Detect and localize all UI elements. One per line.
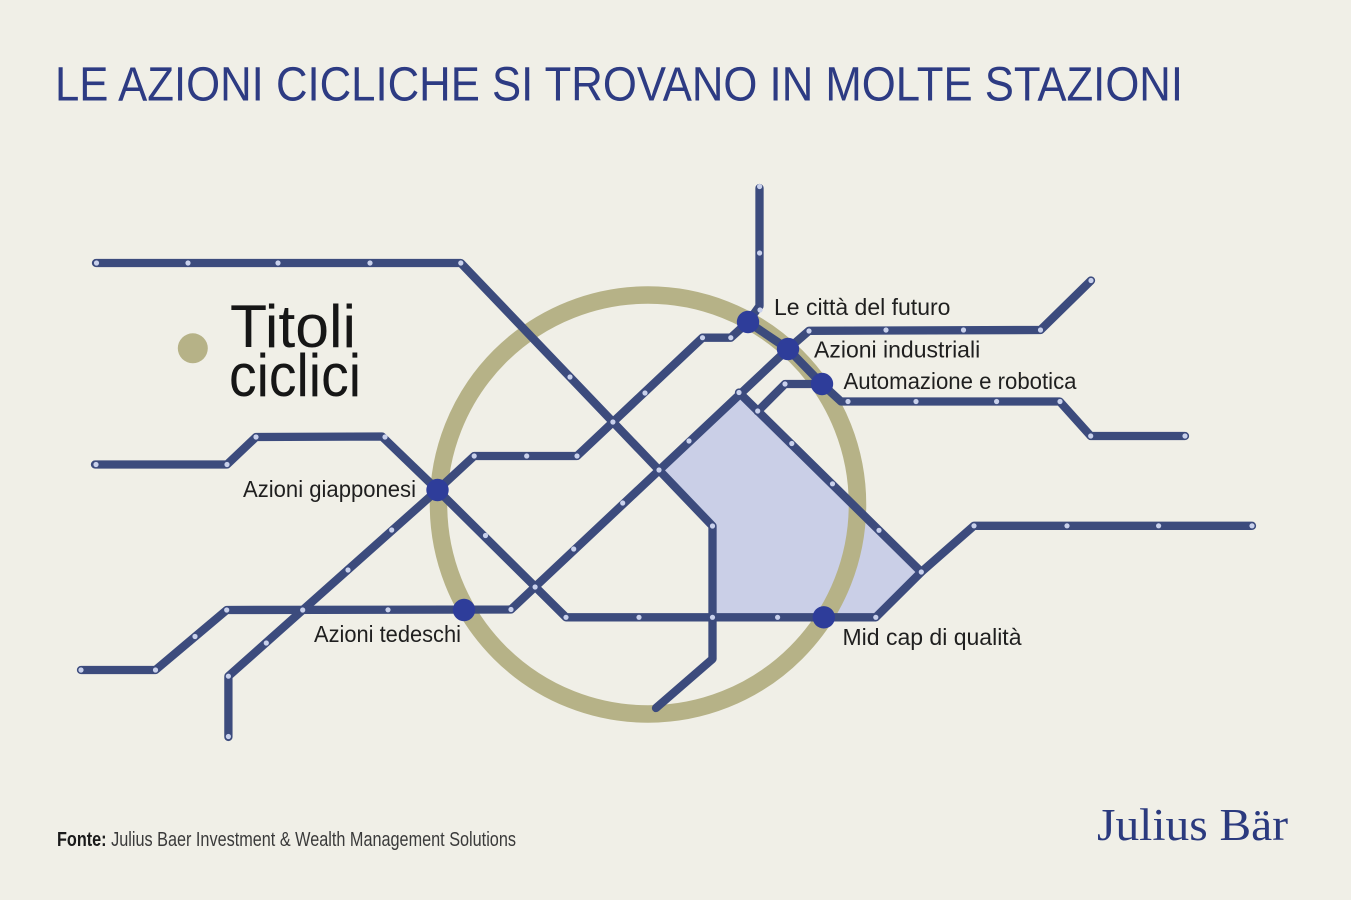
svg-text:Azioni industriali: Azioni industriali [814, 337, 980, 363]
svg-text:ciclici: ciclici [229, 342, 361, 409]
svg-text:Fonte: Julius Baer Investment: Fonte: Julius Baer Investment & Wealth M… [57, 829, 516, 851]
svg-text:Mid cap di qualità: Mid cap di qualità [843, 624, 1022, 650]
svg-text:Julius Bär: Julius Bär [1097, 800, 1288, 850]
svg-text:Automazione e robotica: Automazione e robotica [844, 368, 1077, 394]
svg-text:Azioni tedeschi: Azioni tedeschi [314, 621, 461, 647]
svg-text:LE AZIONI CICLICHE SI TROVANO: LE AZIONI CICLICHE SI TROVANO IN MOLTE S… [55, 59, 1183, 112]
svg-text:Azioni giapponesi: Azioni giapponesi [243, 476, 416, 502]
svg-text:Le città del futuro: Le città del futuro [774, 294, 950, 320]
